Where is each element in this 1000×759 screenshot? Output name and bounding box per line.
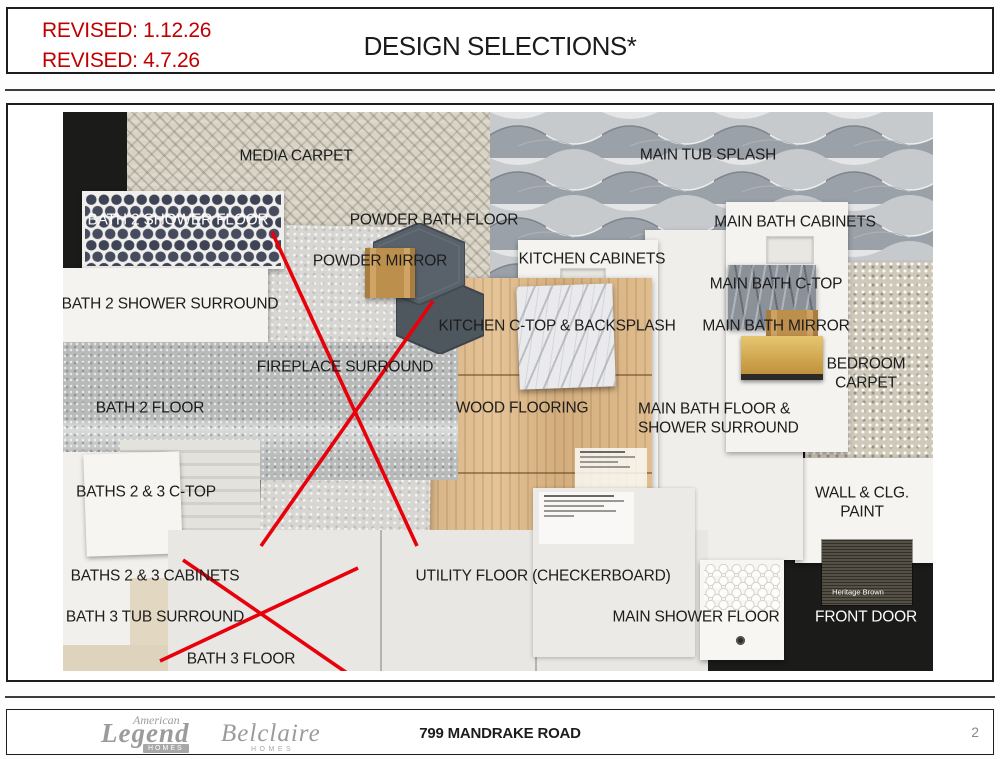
label-utility-floor: UTILITY FLOOR (CHECKERBOARD) <box>415 566 670 585</box>
header-box: REVISED: 1.12.26 REVISED: 4.7.26 DESIGN … <box>6 7 994 74</box>
sample-card-hole <box>736 636 745 645</box>
front-door-color-name: Heritage Brown <box>832 587 884 596</box>
wood-sample-sticker <box>575 448 647 490</box>
label-wood-flooring: WOOD FLOORING <box>456 398 589 417</box>
selections-photo-collage: Heritage Brown MEDIA CARPET MAIN TUB SPL… <box>63 112 933 671</box>
label-main-bath-cabinets: MAIN BATH CABINETS <box>714 212 875 231</box>
label-powder-bath-floor: POWDER BATH FLOOR <box>350 210 519 229</box>
page-number: 2 <box>971 724 979 740</box>
logo-belclaire-homes: HOMES <box>251 746 294 753</box>
label-front-door: FRONT DOOR <box>815 607 917 626</box>
label-baths23-cabinets: BATHS 2 & 3 CABINETS <box>71 566 240 585</box>
label-main-bath-mirror: MAIN BATH MIRROR <box>702 316 849 335</box>
front-door-swatch: Heritage Brown <box>822 540 912 605</box>
tile-sample-sticker <box>539 492 634 544</box>
label-bath2-shower-surround: BATH 2 SHOWER SURROUND <box>63 294 278 313</box>
footer-address: 799 MANDRAKE ROAD <box>7 725 993 742</box>
kitchen-countertop-backsplash-swatch <box>516 283 616 389</box>
footer-divider <box>5 696 995 698</box>
slide-page: REVISED: 1.12.26 REVISED: 4.7.26 DESIGN … <box>0 0 1000 759</box>
label-powder-mirror: POWDER MIRROR <box>313 251 447 270</box>
header-divider <box>5 89 995 91</box>
gold-sample-edge <box>741 374 823 380</box>
cabinet-pull-notch <box>766 236 814 264</box>
main-bath-mirror-gold-sample <box>741 336 823 380</box>
label-main-bath-floor-shower: MAIN BATH FLOOR & SHOWER SURROUND <box>638 400 806 439</box>
label-main-shower-floor: MAIN SHOWER FLOOR <box>612 607 779 626</box>
label-bath2-shower-floor: BATH 2 SHOWER FLOOR <box>87 210 268 229</box>
label-main-tub-splash: MAIN TUB SPLASH <box>640 145 776 164</box>
label-main-bath-ctop: MAIN BATH C-TOP <box>710 274 843 293</box>
bath2-shower-floor-card <box>82 191 284 269</box>
label-fireplace-surround: FIREPLACE SURROUND <box>257 357 433 376</box>
page-title: DESIGN SELECTIONS* <box>8 31 992 62</box>
logo-homes-badge: HOMES <box>143 744 189 753</box>
label-bath3-floor: BATH 3 FLOOR <box>187 649 295 668</box>
label-bath3-tub-surround: BATH 3 TUB SURROUND <box>66 607 244 626</box>
label-wall-clg-paint: WALL & CLG. PAINT <box>802 484 922 523</box>
label-kitchen-cabinets: KITCHEN CABINETS <box>519 249 666 268</box>
label-bedroom-carpet: BEDROOM CARPET <box>816 355 916 394</box>
label-media-carpet: MEDIA CARPET <box>239 146 352 165</box>
label-bath2-floor: BATH 2 FLOOR <box>96 398 204 417</box>
footer-box: American Legend HOMES Belclaire HOMES 79… <box>6 709 994 755</box>
label-kitchen-ctop-backsplash: KITCHEN C-TOP & BACKSPLASH <box>438 316 675 335</box>
label-baths23-ctop: BATHS 2 & 3 C-TOP <box>76 482 216 501</box>
